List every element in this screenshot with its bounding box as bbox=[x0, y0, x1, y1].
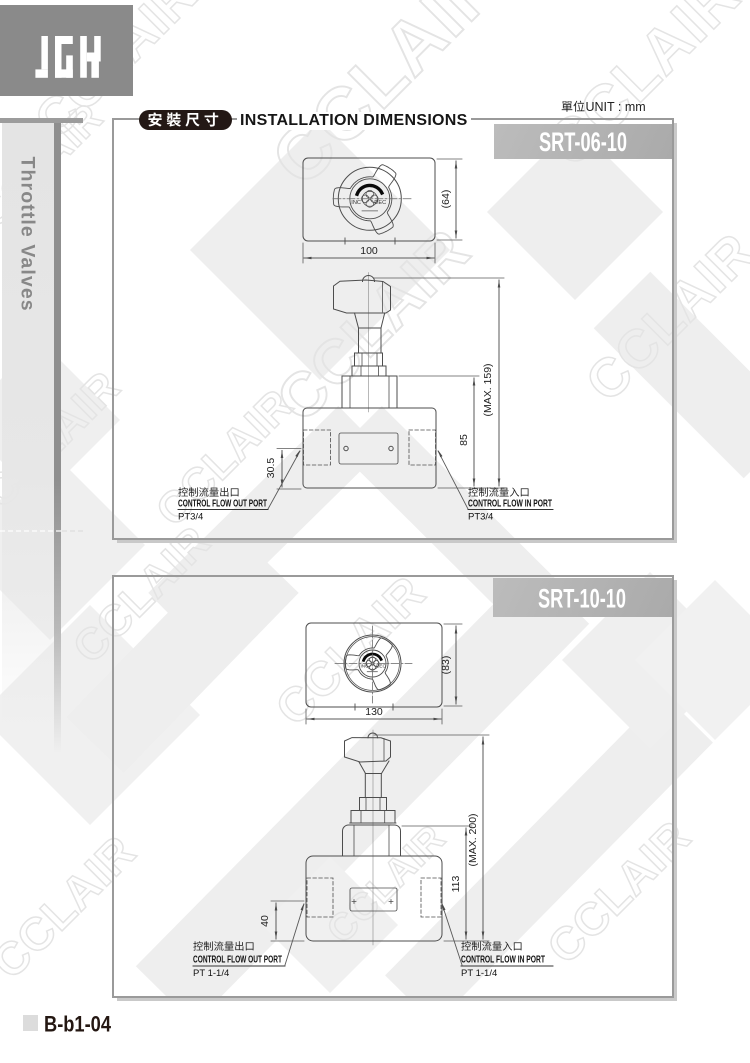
svg-text:DEC: DEC bbox=[376, 664, 386, 669]
svg-text:B-b1-04: B-b1-04 bbox=[44, 1012, 111, 1037]
svg-text:(MAX. 200): (MAX. 200) bbox=[467, 813, 479, 866]
svg-text:CONTROL FLOW OUT PORT: CONTROL FLOW OUT PORT bbox=[178, 498, 267, 510]
svg-text:INC: INC bbox=[351, 200, 361, 206]
svg-text:40: 40 bbox=[259, 915, 271, 927]
svg-text:PT 1-1/4: PT 1-1/4 bbox=[193, 968, 229, 979]
svg-text:PT3/4: PT3/4 bbox=[468, 512, 493, 523]
svg-text:CONTROL FLOW IN PORT: CONTROL FLOW IN PORT bbox=[468, 498, 552, 510]
svg-text:30.5: 30.5 bbox=[265, 458, 277, 479]
svg-text:CONTROL FLOW OUT PORT: CONTROL FLOW OUT PORT bbox=[193, 954, 282, 966]
svg-text:85: 85 bbox=[458, 434, 470, 446]
svg-text:(MAX. 159): (MAX. 159) bbox=[482, 363, 494, 416]
svg-text:113: 113 bbox=[450, 875, 462, 892]
svg-text:(83): (83) bbox=[440, 656, 452, 675]
svg-text:INC: INC bbox=[361, 664, 370, 669]
svg-text:PT3/4: PT3/4 bbox=[178, 512, 203, 523]
svg-text:(64): (64) bbox=[440, 190, 452, 209]
svg-text:DEC: DEC bbox=[374, 200, 386, 206]
svg-text:CONTROL FLOW IN PORT: CONTROL FLOW IN PORT bbox=[461, 954, 545, 966]
svg-text:130: 130 bbox=[365, 706, 383, 718]
svg-text:100: 100 bbox=[360, 245, 378, 257]
svg-text:PT 1-1/4: PT 1-1/4 bbox=[461, 968, 497, 979]
